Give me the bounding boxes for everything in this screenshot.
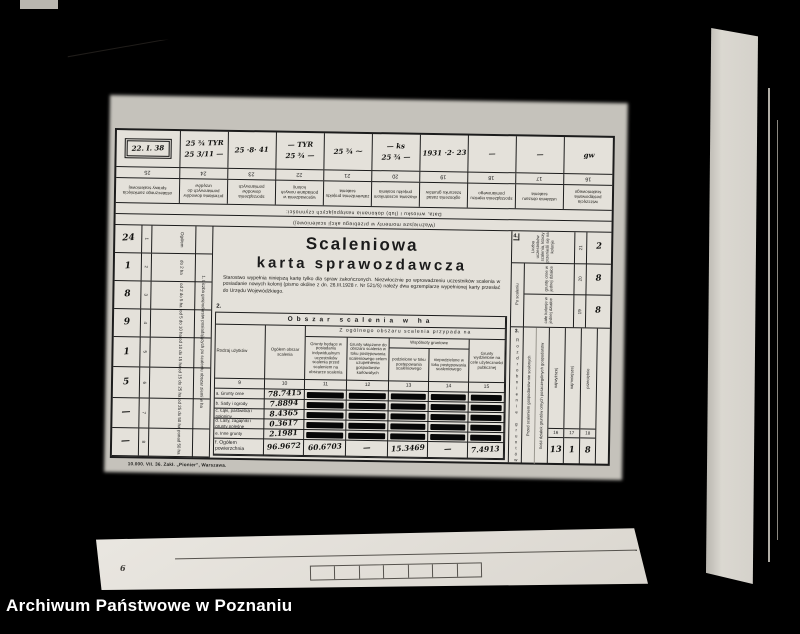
redaction-bar xyxy=(430,433,465,440)
right-rotated-tables: 4. Liczba uczestników scalenia, którzy p… xyxy=(508,231,612,464)
total-row-label: f. Ogółem powierzchnia xyxy=(214,439,264,456)
form-center-column: Scaleniowa karta sprawozdawcza Starostwo… xyxy=(210,227,512,463)
redaction-bar xyxy=(430,413,465,420)
redaction-bar xyxy=(470,414,501,420)
redaction-bar xyxy=(390,413,425,420)
double-frame: 22. I. 38 xyxy=(125,138,172,159)
redaction-bar xyxy=(348,422,385,429)
form-instructions: Starostwo wypełnia niniejszą kartę tylko… xyxy=(223,275,501,299)
redaction-bar xyxy=(349,392,386,399)
date-cell: 25 ¾ ⁓ xyxy=(324,133,373,169)
redaction-bar xyxy=(306,422,343,429)
section4-table: 4. Liczba uczestników scalenia, którzy p… xyxy=(511,231,611,329)
form-body: 24 1 Ogółem 1 2 do 2 ha 8 3 od 2 do 5 ha… xyxy=(112,225,612,464)
date-cell: — xyxy=(516,136,565,172)
archive-caption: Archiwum Państwowe w Poznaniu xyxy=(6,596,292,616)
section1-left-rotated-table: 24 1 Ogółem 1 2 do 2 ha 8 3 od 2 do 5 ha… xyxy=(112,225,214,458)
col10-header: Ogółem obszar scalenia xyxy=(265,325,306,380)
archive-photo-stage: 22. I. 38 25 ¾ TYR 25 3/11 — 25 ·8· 41 —… xyxy=(0,0,800,634)
date-cell: — xyxy=(468,136,517,172)
paper-crease xyxy=(67,36,185,58)
redaction-bar xyxy=(390,423,425,430)
redaction-bar xyxy=(470,424,501,430)
date-cell: — TYR 25 ¾ — xyxy=(276,133,325,169)
date-cell-boxed: 22. I. 38 xyxy=(116,130,181,167)
top-flipped-section: 22. I. 38 25 ¾ TYR 25 3/11 — 25 ·8· 41 —… xyxy=(115,130,612,233)
paper-sliver-top-left xyxy=(20,0,58,9)
page-edge-line xyxy=(768,88,770,562)
scaleniowa-karta-form: 22. I. 38 25 ¾ TYR 25 3/11 — 25 ·8· 41 —… xyxy=(110,128,615,466)
handwritten-date: 22. I. 38 xyxy=(132,143,165,154)
bottom-sheet-table-edge xyxy=(310,562,482,580)
col13-header: podzielone w toku postępowania scaleniow… xyxy=(389,348,430,382)
col12-header: Grunty włączone do obszaru scalenia w to… xyxy=(347,338,390,382)
section3-subheaders: Przed scaleniem gospodarstw nie scalonyc… xyxy=(522,327,550,463)
redaction-bar xyxy=(431,403,466,410)
col11-header: Grunty będące w posiadaniu indywidualnym… xyxy=(305,337,348,381)
bottom-sheet-rule xyxy=(175,550,637,560)
section3-table: 3. Rozdrobnienie gruntów Przed scaleniem… xyxy=(509,327,610,464)
redaction-bar xyxy=(349,402,386,409)
redaction-bar xyxy=(471,404,502,410)
empty-column xyxy=(596,329,610,465)
redaction-bar xyxy=(306,432,343,439)
page-edge-line xyxy=(777,120,778,540)
redaction-bar xyxy=(307,392,344,399)
date-cell: 25 ·8· 41 xyxy=(228,132,277,168)
redaction-bar xyxy=(348,432,385,439)
redaction-bar xyxy=(390,433,425,440)
section1-header: 1. Liczba gospodarstw posiadających po s… xyxy=(192,226,213,457)
signature-mark: gw xyxy=(583,150,594,161)
col15-header: Grunty wydzielone na cele użyteczności p… xyxy=(469,340,506,384)
date-cell: 25 ¾ TYR 25 3/11 — xyxy=(180,131,229,167)
adjacent-page-edge xyxy=(706,28,758,584)
redaction-bar xyxy=(391,403,426,410)
paper-crease xyxy=(150,31,240,38)
redaction-bar xyxy=(430,423,465,430)
bottom-sheet-handwriting: 6 xyxy=(120,563,126,573)
area-table-section2: Obszar scalenia w ha Rodzaj użytków Ogół… xyxy=(213,312,507,461)
col9-header: Rodzaj użytków xyxy=(215,325,266,380)
redaction-bar xyxy=(431,393,466,400)
date-cell: 1931 ·2· 23 xyxy=(420,135,469,171)
col14-header: niepodzielone w toku postępowania scalen… xyxy=(429,349,470,383)
redaction-bar xyxy=(470,434,501,440)
date-cell-signature: gw xyxy=(564,137,613,173)
redaction-bar xyxy=(306,412,343,419)
underlying-bottom-sheet: 6 xyxy=(96,527,648,590)
section4-number: 4. xyxy=(513,233,519,240)
redaction-bar xyxy=(348,412,385,419)
redaction-bar xyxy=(307,402,344,409)
form-title-line2: karta sprawozdawcza xyxy=(216,253,508,275)
date-cell: — ks 25 ¾ — xyxy=(372,134,421,170)
redaction-bar xyxy=(471,394,502,400)
redaction-bar xyxy=(391,393,426,400)
